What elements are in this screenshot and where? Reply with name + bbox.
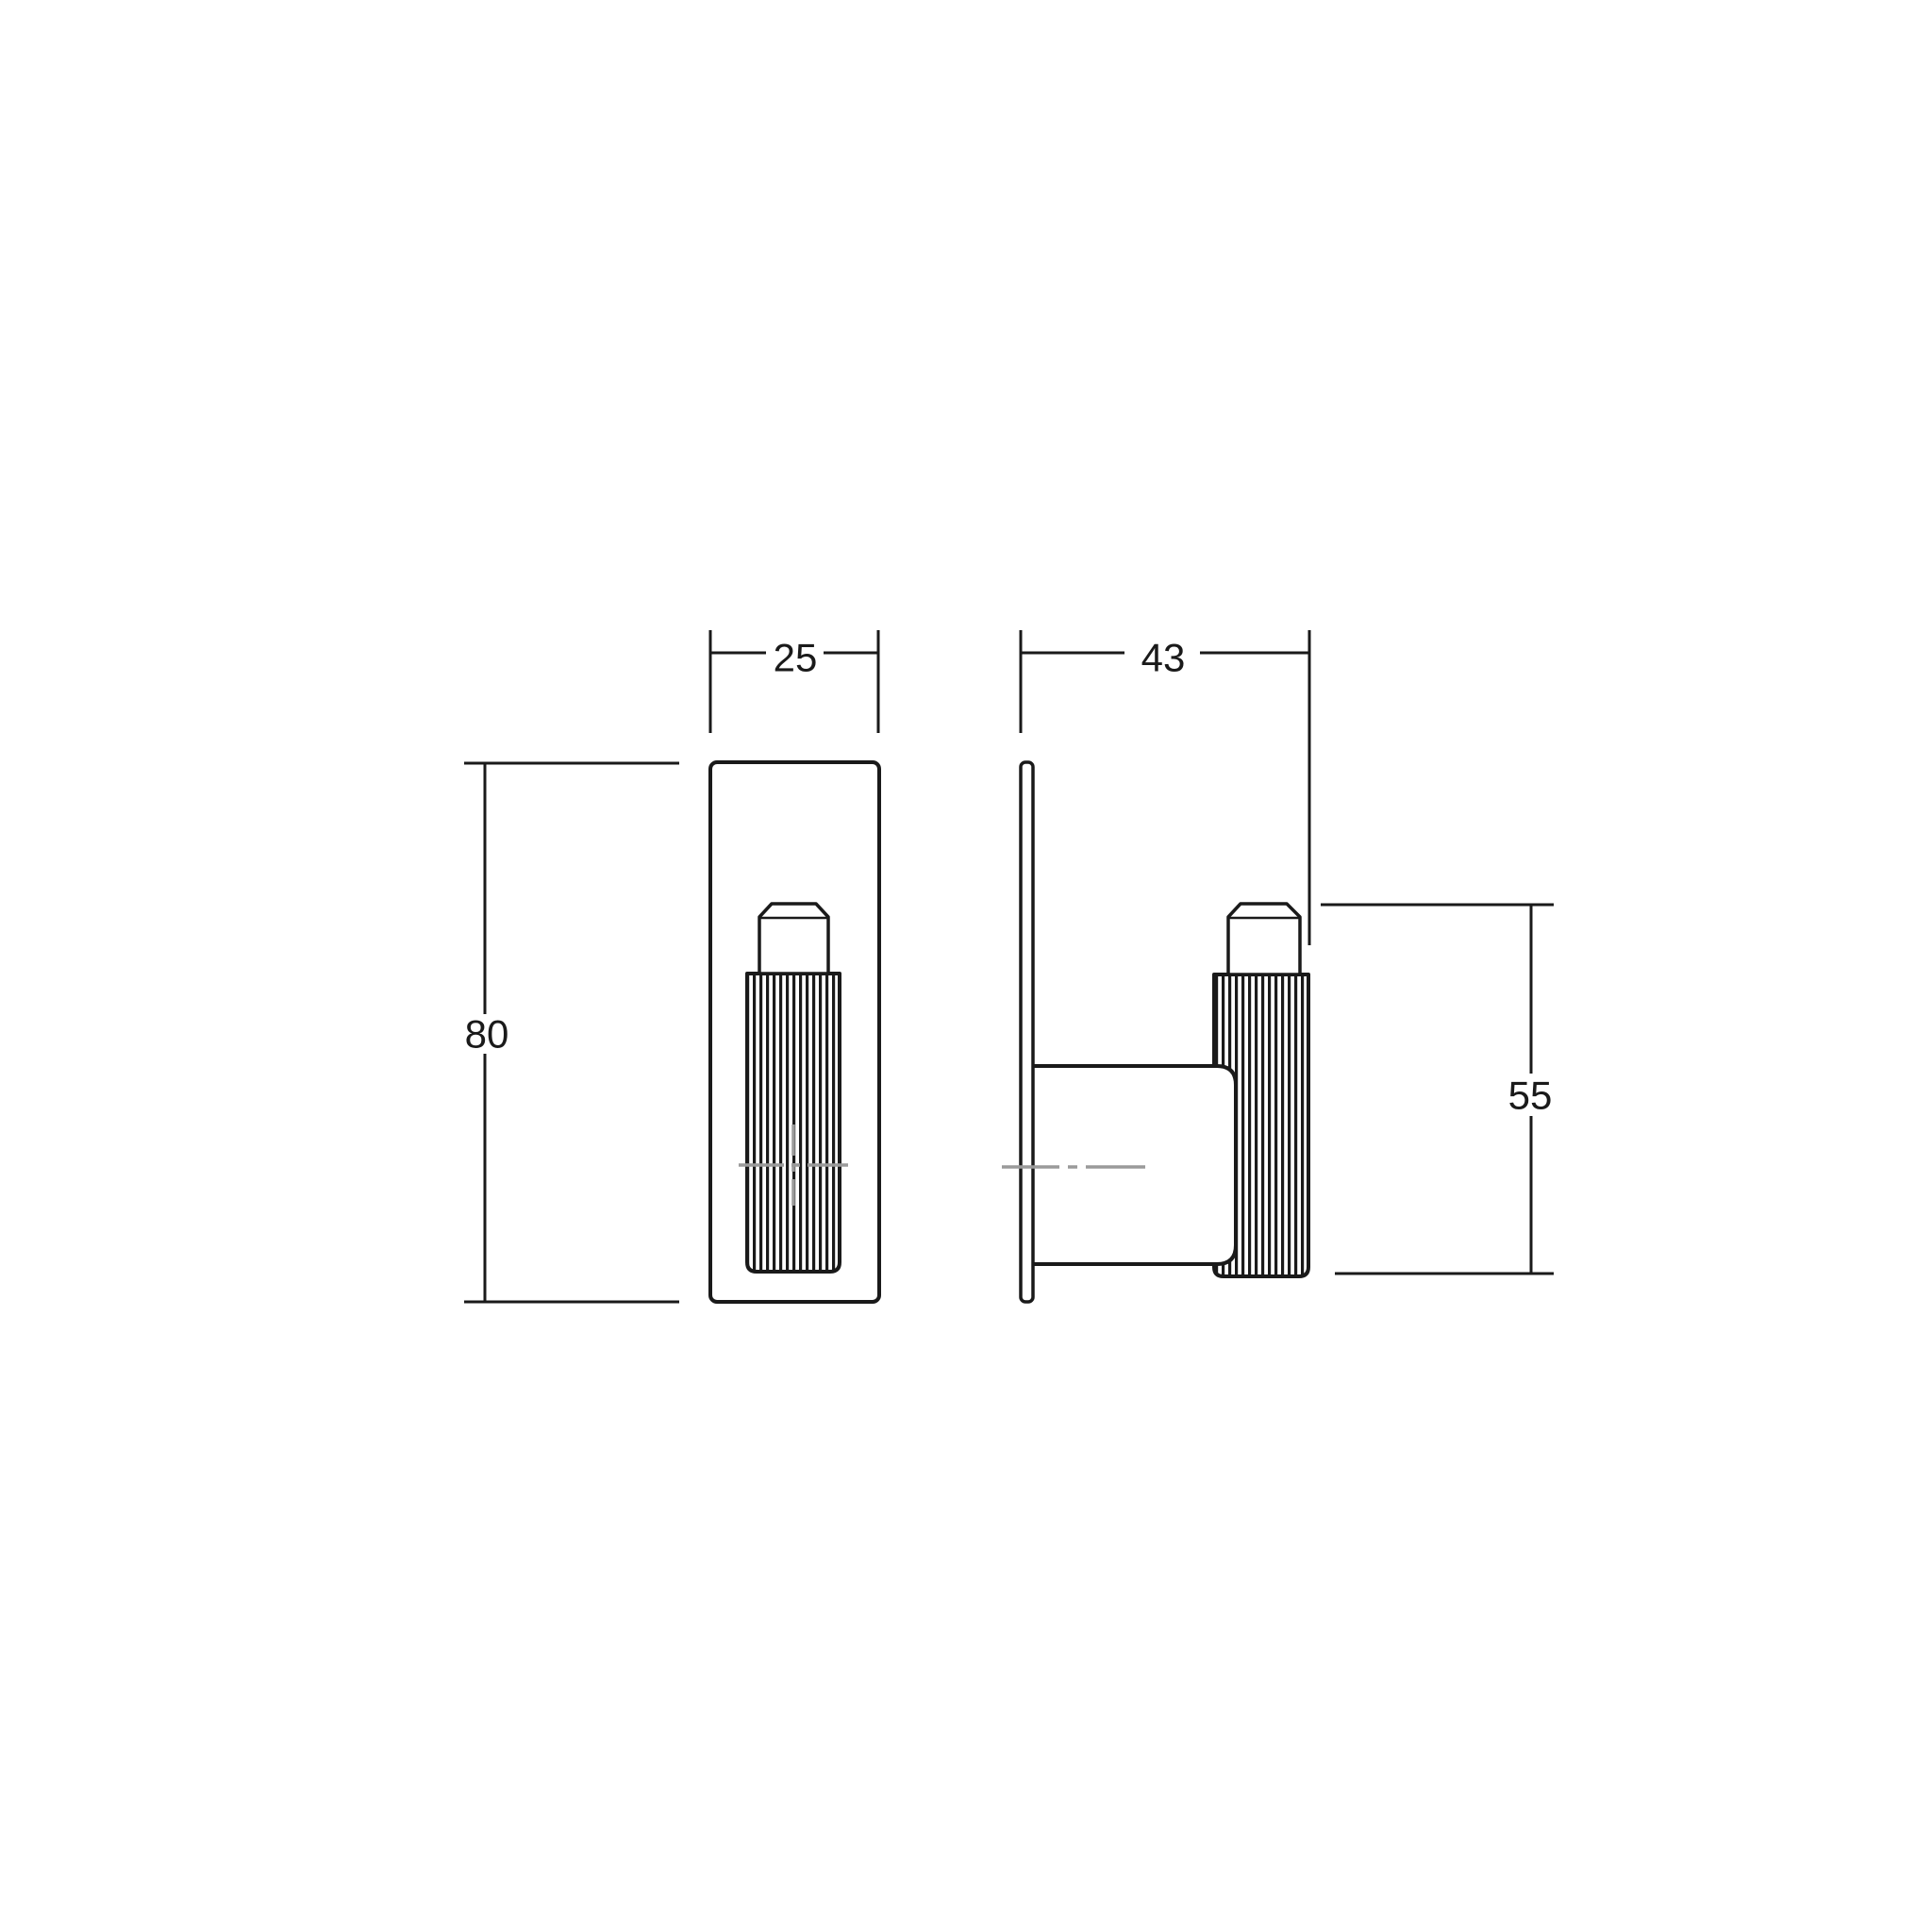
dimension-knob-height: 55: [1321, 905, 1554, 1274]
side-mounting-arm: [1033, 1066, 1236, 1264]
front-knob-cylinder: [747, 974, 840, 1272]
side-knob-cap: [1228, 904, 1300, 974]
drawing-page: 25 80 43 55: [0, 0, 1932, 1932]
dimension-side-depth: 43: [1021, 630, 1309, 945]
dimension-front-height: 80: [464, 763, 679, 1302]
dimension-front-width: 25: [710, 630, 878, 733]
side-depth-label: 43: [1141, 636, 1186, 680]
knob-height-label: 55: [1508, 1074, 1553, 1118]
front-height-label: 80: [465, 1012, 509, 1057]
side-view: [1002, 762, 1308, 1302]
front-view: [710, 762, 879, 1302]
front-width-label: 25: [774, 636, 818, 680]
side-backplate-edge: [1021, 762, 1033, 1302]
technical-drawing-canvas: 25 80 43 55: [0, 0, 1932, 1932]
front-knob-cap: [759, 904, 828, 974]
